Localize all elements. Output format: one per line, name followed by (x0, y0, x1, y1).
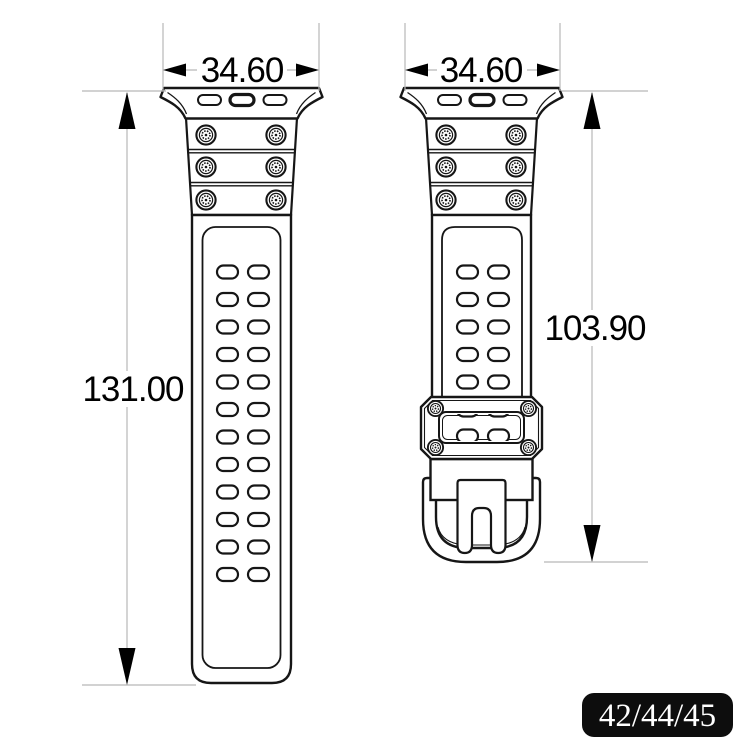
dimension-right-width: 34.60 (405, 23, 560, 91)
strap-keeper (421, 397, 542, 459)
strap-buckle-view (401, 88, 563, 562)
dimension-left-length: 131.00 (82, 91, 196, 685)
keeper-window (439, 412, 524, 443)
technical-drawing-page: 34.60 34.60 131.00 103.90 (0, 0, 750, 750)
strap-full-view (161, 88, 323, 683)
strap-body-outline (432, 215, 531, 400)
dimension-right-length: 103.90 (544, 91, 648, 562)
dimension-label-left-length: 131.00 (82, 370, 184, 409)
arrow-right-icon (296, 64, 319, 77)
dimension-annotations: 34.60 34.60 131.00 103.90 (82, 23, 648, 685)
arrow-up-icon (584, 92, 601, 129)
size-badge-label: 42/44/45 (599, 698, 716, 734)
arrow-right-icon (537, 64, 560, 77)
buckle-inner-lip (438, 527, 525, 545)
buckle-tongue (458, 480, 506, 553)
strap-lug-adapter (161, 88, 323, 215)
dimension-label-right-width: 34.60 (440, 51, 523, 90)
strap-lug-adapter (401, 88, 563, 215)
arrow-left-icon (405, 64, 428, 77)
arrow-up-icon (119, 92, 136, 129)
dimension-left-width: 34.60 (163, 23, 319, 91)
strap-body-outline (192, 215, 291, 683)
dimension-label-right-length: 103.90 (544, 309, 646, 348)
watch-strap-technical-drawing: 34.60 34.60 131.00 103.90 (0, 0, 750, 750)
dimension-label-left-width: 34.60 (201, 51, 284, 90)
arrow-down-icon (584, 525, 601, 562)
arrow-left-icon (163, 64, 186, 77)
arrow-down-icon (119, 648, 136, 685)
size-badge: 42/44/45 (582, 693, 733, 737)
